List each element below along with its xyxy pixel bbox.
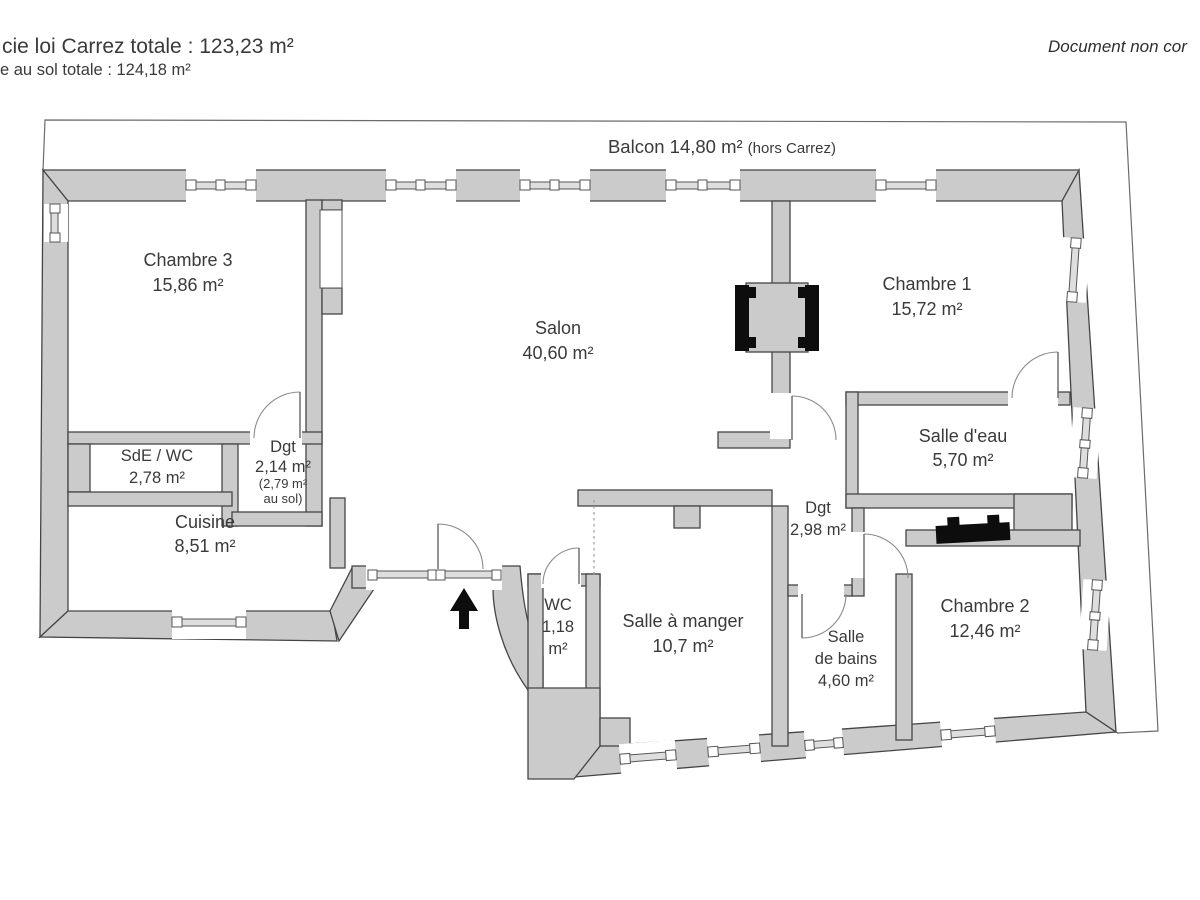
window-right-1 <box>1058 237 1090 303</box>
window-left <box>44 204 68 242</box>
room-bains-area: 4,60 m² <box>818 672 874 690</box>
room-dgt2-name: Dgt <box>805 499 831 517</box>
wall-dining-top <box>578 490 772 506</box>
wall-sde-left-pier <box>68 444 90 492</box>
room-chambre3-area: 15,86 m² <box>152 275 223 295</box>
window-top-5 <box>876 168 936 203</box>
room-cuisine-name: Cuisine <box>175 512 235 532</box>
wall-cuisine-right <box>330 498 345 568</box>
room-sde-wc-area: 2,78 m² <box>129 469 185 487</box>
room-chambre1-area: 15,72 m² <box>891 299 962 319</box>
room-dgt1-area: 2,14 m² <box>255 458 311 476</box>
door-arc-chambre2 <box>864 534 908 578</box>
room-chambre3-name: Chambre 3 <box>143 250 232 270</box>
room-cuisine-area: 8,51 m² <box>174 536 235 556</box>
room-chambre2-name: Chambre 2 <box>940 596 1029 616</box>
room-wc-area1: 1,18 <box>542 618 574 636</box>
room-wc-name: WC <box>544 596 572 614</box>
room-dgt1-note2: au sol) <box>263 491 302 506</box>
wall-wc-left <box>528 574 543 690</box>
room-bains-name1: Salle <box>828 628 865 646</box>
balcony-label: Balcon 14,80 m²(hors Carrez) <box>608 136 836 157</box>
wall-niche-cap-bottom <box>322 288 342 314</box>
wall-niche-cap-top <box>322 200 342 210</box>
entrance-arrow-icon <box>450 588 478 629</box>
room-salledeau-name: Salle d'eau <box>919 426 1008 446</box>
room-salon-area: 40,60 m² <box>522 343 593 363</box>
room-bains-name2: de bains <box>815 650 877 668</box>
wall-sde-bottom <box>68 492 232 506</box>
window-top-4 <box>666 168 740 203</box>
window-bottom-3 <box>804 728 844 761</box>
floor-plan: cie loi Carrez totale : 123,23 m² e au s… <box>0 0 1200 900</box>
room-salon-name: Salon <box>535 318 581 338</box>
wall-dining-step <box>600 718 630 746</box>
header-floor-total: e au sol totale : 124,18 m² <box>0 61 191 79</box>
room-sde-wc-name: SdE / WC <box>121 447 194 465</box>
window-top-1 <box>186 168 256 203</box>
room-dgt2-area: 2,98 m² <box>790 521 846 539</box>
room-wc-area2: m² <box>548 640 568 658</box>
duct-niche <box>320 210 342 288</box>
window-top-2 <box>386 168 456 203</box>
wall-dining-top-step <box>674 506 700 528</box>
window-right-2 <box>1069 407 1102 479</box>
room-dining-area: 10,7 m² <box>652 636 713 656</box>
entry-door <box>366 524 502 590</box>
header-disclaimer: Document non cor <box>1048 37 1188 56</box>
window-bottom-2 <box>707 733 761 767</box>
window-bottom-1 <box>619 740 677 774</box>
window-top-3 <box>520 168 590 203</box>
wall-dining-right <box>772 506 788 746</box>
room-salledeau-area: 5,70 m² <box>932 450 993 470</box>
window-kitchen <box>172 609 246 639</box>
window-right-3 <box>1079 579 1112 651</box>
wall-dgt1-bottom <box>232 512 322 526</box>
window-bottom-4 <box>940 716 996 750</box>
wall-salledeau-left <box>846 392 858 508</box>
room-dining-name: Salle à manger <box>622 611 743 631</box>
radiator <box>935 514 1010 544</box>
room-dgt1-name: Dgt <box>270 438 296 456</box>
room-chambre1-name: Chambre 1 <box>882 274 971 294</box>
wall-salledeau-step <box>1014 494 1072 532</box>
wall-bains-chambre2-divider <box>896 574 912 740</box>
door-arc-chambre1 <box>792 396 836 440</box>
room-chambre2-area: 12,46 m² <box>949 621 1020 641</box>
room-dgt1-note1: (2,79 m² <box>259 476 308 491</box>
header-carrez-total: cie loi Carrez totale : 123,23 m² <box>2 35 294 58</box>
